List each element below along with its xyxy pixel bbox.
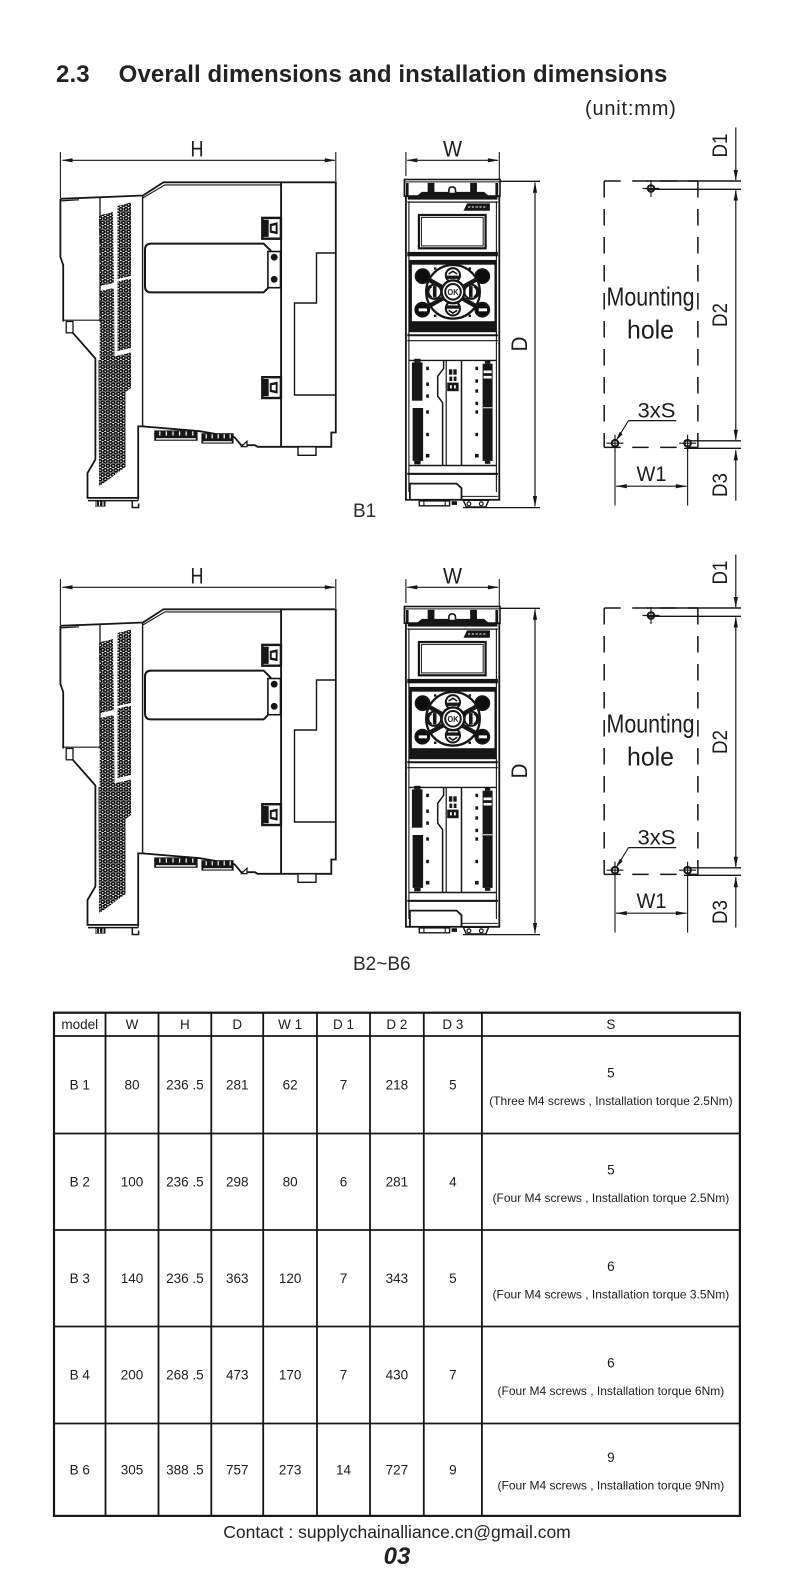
svg-text:H: H — [180, 1017, 190, 1032]
svg-text:298: 298 — [226, 1174, 249, 1189]
svg-text:B 3: B 3 — [70, 1271, 90, 1286]
svg-text:7: 7 — [340, 1271, 348, 1286]
svg-text:W: W — [126, 1017, 139, 1032]
svg-text:388 .5: 388 .5 — [166, 1462, 204, 1477]
svg-text:273: 273 — [279, 1462, 302, 1477]
svg-text:727: 727 — [386, 1462, 409, 1477]
svg-text:D 1: D 1 — [333, 1017, 354, 1032]
svg-text:305: 305 — [121, 1462, 144, 1477]
svg-text:80: 80 — [283, 1174, 298, 1189]
svg-text:5: 5 — [607, 1065, 615, 1080]
svg-text:6: 6 — [607, 1259, 615, 1274]
svg-text:B 6: B 6 — [70, 1462, 90, 1477]
svg-text:(Four M4 screws , Installation: (Four M4 screws , Installation torque 9N… — [498, 1479, 725, 1493]
svg-text:D 3: D 3 — [442, 1017, 463, 1032]
svg-text:62: 62 — [283, 1077, 298, 1092]
svg-text:(Four M4 screws , Installation: (Four M4 screws , Installation torque 3.… — [493, 1287, 730, 1301]
svg-text:14: 14 — [336, 1462, 352, 1477]
svg-text:430: 430 — [386, 1368, 409, 1383]
svg-text:140: 140 — [121, 1271, 144, 1286]
svg-text:236 .5: 236 .5 — [166, 1077, 204, 1092]
svg-text:5: 5 — [607, 1162, 615, 1177]
svg-text:80: 80 — [124, 1077, 139, 1092]
svg-text:236 .5: 236 .5 — [166, 1271, 204, 1286]
svg-text:5: 5 — [449, 1077, 457, 1092]
svg-text:281: 281 — [226, 1077, 249, 1092]
svg-text:W 1: W 1 — [278, 1017, 302, 1032]
svg-text:473: 473 — [226, 1368, 249, 1383]
svg-text:281: 281 — [386, 1174, 409, 1189]
svg-text:343: 343 — [386, 1271, 409, 1286]
svg-text:100: 100 — [121, 1174, 144, 1189]
svg-text:236 .5: 236 .5 — [166, 1174, 204, 1189]
svg-text:200: 200 — [121, 1368, 144, 1383]
svg-text:757: 757 — [226, 1462, 249, 1477]
svg-text:B 2: B 2 — [70, 1174, 90, 1189]
svg-text:4: 4 — [449, 1174, 457, 1189]
svg-text:6: 6 — [607, 1356, 615, 1371]
svg-text:7: 7 — [340, 1368, 348, 1383]
svg-text:S: S — [606, 1017, 615, 1032]
svg-text:7: 7 — [340, 1077, 348, 1092]
svg-text:6: 6 — [340, 1174, 348, 1189]
svg-text:5: 5 — [449, 1271, 457, 1286]
svg-text:363: 363 — [226, 1271, 249, 1286]
svg-text:170: 170 — [279, 1368, 302, 1383]
svg-text:7: 7 — [449, 1368, 457, 1383]
svg-text:D 2: D 2 — [386, 1017, 407, 1032]
svg-text:(Four M4 screws , Installation: (Four M4 screws , Installation torque 6N… — [498, 1384, 725, 1398]
svg-text:D: D — [232, 1017, 242, 1032]
svg-text:(Three M4 screws , Installatio: (Three M4 screws , Installation torque 2… — [489, 1094, 732, 1108]
svg-text:model: model — [61, 1017, 98, 1032]
svg-text:B 4: B 4 — [70, 1368, 91, 1383]
svg-text:(Four M4 screws , Installation: (Four M4 screws , Installation torque 2.… — [493, 1191, 730, 1205]
svg-text:120: 120 — [279, 1271, 302, 1286]
svg-text:9: 9 — [607, 1450, 615, 1465]
svg-text:B 1: B 1 — [70, 1077, 90, 1092]
svg-text:268 .5: 268 .5 — [166, 1368, 204, 1383]
svg-text:218: 218 — [386, 1077, 409, 1092]
svg-text:9: 9 — [449, 1462, 457, 1477]
